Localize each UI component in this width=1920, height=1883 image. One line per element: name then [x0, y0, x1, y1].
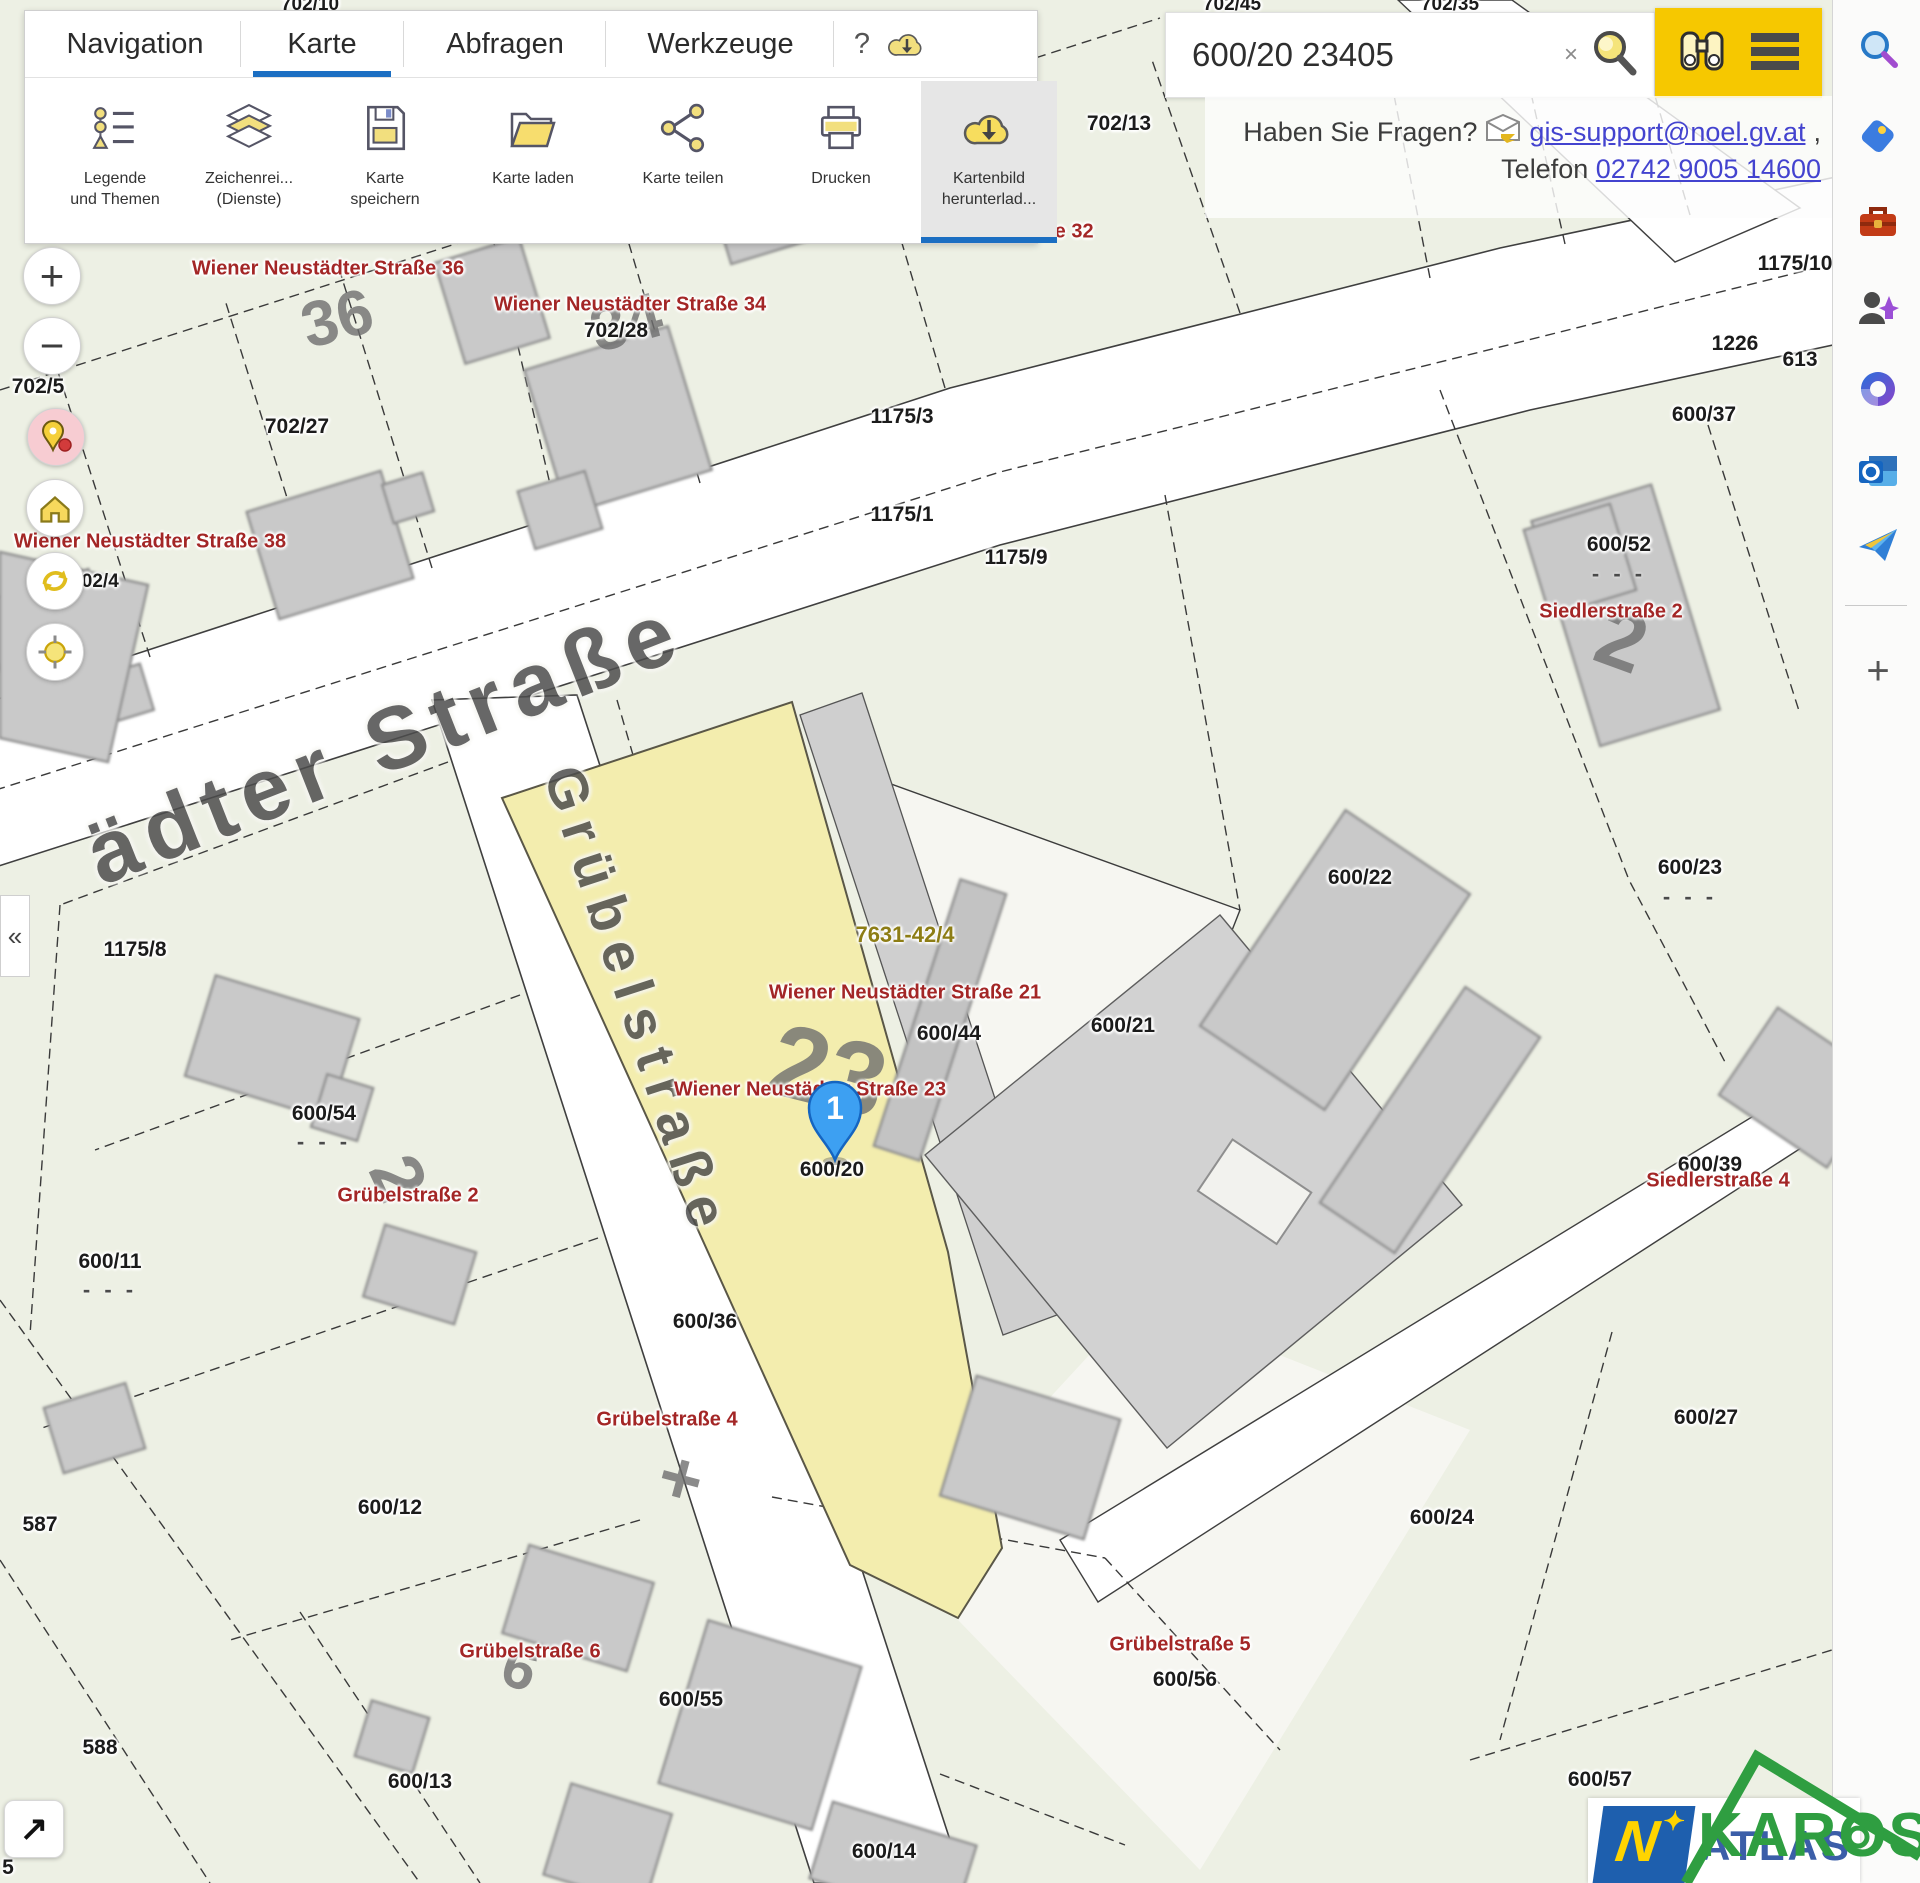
- comma: ,: [1813, 117, 1821, 148]
- tab-abfragen[interactable]: Abfragen: [410, 11, 600, 77]
- locate-me-button[interactable]: [26, 623, 84, 681]
- contact-info: Haben Sie Fragen? gis-support@noel.gv.at…: [1205, 96, 1835, 218]
- drawing-services-button[interactable]: Zeichenrei...(Dienste): [185, 81, 313, 243]
- tab-navigation[interactable]: Navigation: [35, 11, 235, 77]
- collapse-panel-button[interactable]: «: [0, 895, 30, 977]
- search-icon[interactable]: [1857, 28, 1899, 70]
- download-map-image-button[interactable]: Kartenbildherunterlad...: [921, 81, 1057, 243]
- telefon-label: Telefon: [1501, 154, 1588, 184]
- binoculars-icon[interactable]: [1676, 27, 1728, 80]
- fullscreen-button[interactable]: ↗: [4, 1800, 64, 1858]
- search-options-group: [1655, 8, 1822, 98]
- location-pin-icon: [39, 420, 73, 454]
- shopping-tag-icon[interactable]: [1857, 118, 1899, 160]
- noe-logo-icon: N✦: [1593, 1806, 1696, 1883]
- noe-atlas-logo: N✦ ATLAS: [1588, 1798, 1860, 1883]
- home-icon: [37, 491, 73, 525]
- survey-parcel-label: 7631-42/4: [855, 922, 954, 948]
- printer-icon: [815, 103, 867, 158]
- legend-icon: [90, 103, 140, 158]
- map-graphics: [0, 0, 1920, 1883]
- clear-location-button[interactable]: [27, 408, 85, 466]
- print-button[interactable]: Drucken: [771, 81, 911, 243]
- target-icon: [37, 634, 73, 670]
- share-icon: [658, 103, 708, 158]
- atlas-logo-text: ATLAS: [1700, 1822, 1852, 1870]
- save-icon: [360, 103, 410, 158]
- save-map-button[interactable]: Kartespeichern: [325, 81, 445, 243]
- clear-search-icon[interactable]: ×: [1564, 41, 1578, 69]
- phone-link[interactable]: 02742 9005 14600: [1596, 154, 1821, 184]
- contact-question: Haben Sie Fragen?: [1243, 117, 1477, 148]
- browser-sidebar: +: [1832, 0, 1920, 1883]
- selected-location-marker[interactable]: 1: [800, 1072, 870, 1167]
- help-button[interactable]: ?: [840, 11, 884, 77]
- tab-werkzeuge[interactable]: Werkzeuge: [613, 11, 828, 77]
- tab-row: Navigation Karte Abfragen Werkzeuge ?: [25, 11, 1037, 78]
- zoom-in-button[interactable]: +: [23, 247, 81, 305]
- people-icon[interactable]: [1857, 286, 1899, 328]
- layers-icon: [224, 103, 274, 158]
- gis-app: ädter StraßeGrübelstraße 363423226+ 702/…: [0, 0, 1920, 1883]
- share-map-button[interactable]: Karte teilen: [615, 81, 751, 243]
- load-map-button[interactable]: Karte laden: [463, 81, 603, 243]
- microsoft-365-icon[interactable]: [1857, 368, 1899, 410]
- home-extent-button[interactable]: [26, 479, 84, 537]
- toolbox-icon[interactable]: [1857, 200, 1899, 242]
- history-arrows-icon: [37, 563, 73, 599]
- legend-themes-button[interactable]: Legendeund Themen: [55, 81, 175, 243]
- previous-extent-button[interactable]: [26, 552, 84, 610]
- send-plane-icon[interactable]: [1857, 523, 1899, 565]
- folder-open-icon: [507, 103, 559, 158]
- marker-number: 1: [826, 1090, 844, 1126]
- menu-icon[interactable]: [1749, 29, 1801, 78]
- cloud-download-icon: [962, 103, 1016, 158]
- map-canvas[interactable]: ädter StraßeGrübelstraße 363423226+ 702/…: [0, 0, 1920, 1883]
- outlook-icon[interactable]: [1857, 450, 1899, 492]
- cloud-download-icon[interactable]: [887, 27, 927, 66]
- tab-karte[interactable]: Karte: [247, 11, 397, 77]
- mail-icon: [1485, 114, 1521, 151]
- toolbar-panel: Navigation Karte Abfragen Werkzeuge ?: [24, 10, 1038, 244]
- search-box[interactable]: 600/20 23405 ×: [1165, 12, 1655, 98]
- sidebar-add-button[interactable]: +: [1857, 650, 1899, 692]
- search-icon[interactable]: [1588, 27, 1640, 84]
- zoom-out-button[interactable]: −: [23, 317, 81, 375]
- search-input[interactable]: 600/20 23405: [1192, 36, 1564, 74]
- sidebar-divider: [1845, 605, 1907, 606]
- support-email-link[interactable]: gis-support@noel.gv.at: [1529, 117, 1805, 148]
